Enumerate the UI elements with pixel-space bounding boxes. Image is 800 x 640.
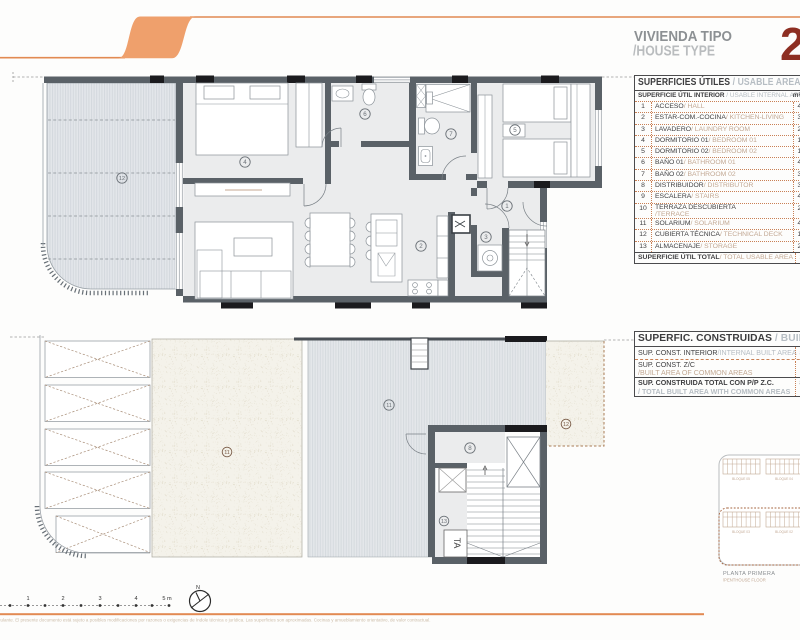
- svg-text:11: 11: [224, 450, 230, 456]
- svg-text:BLOQUE 05: BLOQUE 05: [732, 477, 750, 481]
- svg-text:2: 2: [61, 596, 64, 602]
- svg-text:13: 13: [441, 519, 447, 525]
- svg-text:2: 2: [780, 18, 800, 70]
- svg-text:6: 6: [363, 111, 367, 118]
- svg-text:7: 7: [449, 131, 453, 138]
- svg-text:PLANTA PRIMERA: PLANTA PRIMERA: [723, 571, 775, 577]
- svg-text:3: 3: [98, 596, 101, 602]
- svg-text:4: 4: [243, 159, 247, 166]
- svg-text:BLOQUE 04: BLOQUE 04: [775, 477, 793, 481]
- svg-text:N: N: [196, 585, 200, 591]
- svg-text:1: 1: [505, 203, 509, 210]
- svg-text:/HOUSE TYPE: /HOUSE TYPE: [633, 44, 715, 60]
- svg-text:1: 1: [26, 596, 29, 602]
- svg-text:BLOQUE 02: BLOQUE 02: [775, 530, 793, 534]
- svg-text:2: 2: [419, 243, 423, 250]
- svg-text:5: 5: [513, 127, 517, 134]
- svg-text:BLOQUE 03: BLOQUE 03: [732, 530, 750, 534]
- svg-text:11: 11: [386, 403, 392, 409]
- svg-text:8: 8: [468, 445, 472, 452]
- svg-text:TA: TA: [452, 538, 462, 549]
- svg-text:Infografía orientativa no vinc: Infografía orientativa no vinculante. El…: [0, 618, 431, 623]
- svg-text:12: 12: [563, 422, 569, 428]
- svg-text:3: 3: [484, 234, 488, 241]
- svg-text:/PENTHOUSE FLOOR: /PENTHOUSE FLOOR: [723, 578, 766, 583]
- svg-text:4: 4: [134, 596, 137, 602]
- svg-text:5 m: 5 m: [162, 596, 172, 602]
- svg-text:12: 12: [119, 176, 125, 182]
